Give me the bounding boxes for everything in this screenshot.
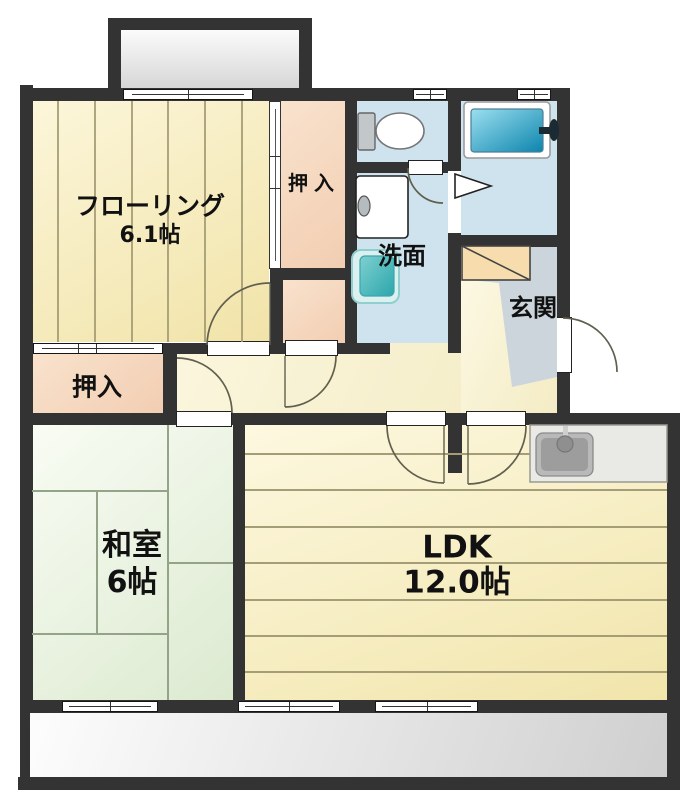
flooring-room-label: フローリング xyxy=(75,194,225,219)
entrance-door-leaf xyxy=(555,317,572,373)
balcony-window xyxy=(123,89,253,100)
ldk-label: LDK xyxy=(422,533,492,564)
flooring-room-size: 6.1帖 xyxy=(120,225,181,247)
floor-plan: フローリング 6.1帖 押入 洗面 玄関 押入 和室 6帖 LDK 12.0帖 xyxy=(0,0,694,802)
flooring-room-floor xyxy=(32,101,269,342)
storage-floor xyxy=(283,280,345,343)
bath-folding-door-opening xyxy=(448,171,461,233)
ldk-door-right-leaf xyxy=(466,411,526,426)
ldk-size: 12.0帖 xyxy=(403,568,511,599)
entrance-label: 玄関 xyxy=(509,296,557,320)
wall xyxy=(557,88,570,425)
ldk-door-left-leaf xyxy=(386,411,446,426)
wall xyxy=(299,18,312,90)
toilet-window xyxy=(413,89,447,100)
ldk-window-right xyxy=(375,701,478,712)
wall xyxy=(20,413,680,425)
japanese-room-label: 和室 xyxy=(102,531,162,561)
wall xyxy=(345,88,357,346)
wall xyxy=(233,413,245,703)
wall xyxy=(448,235,570,247)
japanese-room-window xyxy=(62,701,158,712)
closet-top-label: 押入 xyxy=(288,173,340,193)
closet-top-sliding-door xyxy=(269,101,281,269)
ldk-door-center-post xyxy=(448,413,462,473)
wall xyxy=(18,777,680,790)
wall xyxy=(20,713,30,778)
wall xyxy=(163,343,177,413)
balcony-bottom-floor xyxy=(30,713,667,777)
toilet-door-leaf xyxy=(408,160,443,175)
closet-bottom-sliding-door xyxy=(33,343,163,354)
wall xyxy=(667,413,680,713)
ldk-window-left xyxy=(238,701,340,712)
closet-bottom-label: 押入 xyxy=(72,375,122,400)
wall xyxy=(667,713,680,779)
wall xyxy=(20,85,33,713)
japanese-room-door-leaf xyxy=(176,411,232,427)
bath-window xyxy=(517,89,551,100)
toilet-room-floor xyxy=(357,101,448,162)
bathroom-floor xyxy=(461,101,557,235)
wall xyxy=(108,18,312,30)
washroom-label: 洗面 xyxy=(378,244,426,268)
storage-door-leaf xyxy=(285,340,338,356)
flooring-room-door-leaf xyxy=(207,341,270,356)
entrance-zone-floor xyxy=(461,247,557,413)
balcony-top-floor xyxy=(121,30,299,89)
wall xyxy=(273,268,345,280)
japanese-room-size: 6帖 xyxy=(107,568,158,598)
wall xyxy=(270,268,283,354)
wall xyxy=(20,88,570,101)
